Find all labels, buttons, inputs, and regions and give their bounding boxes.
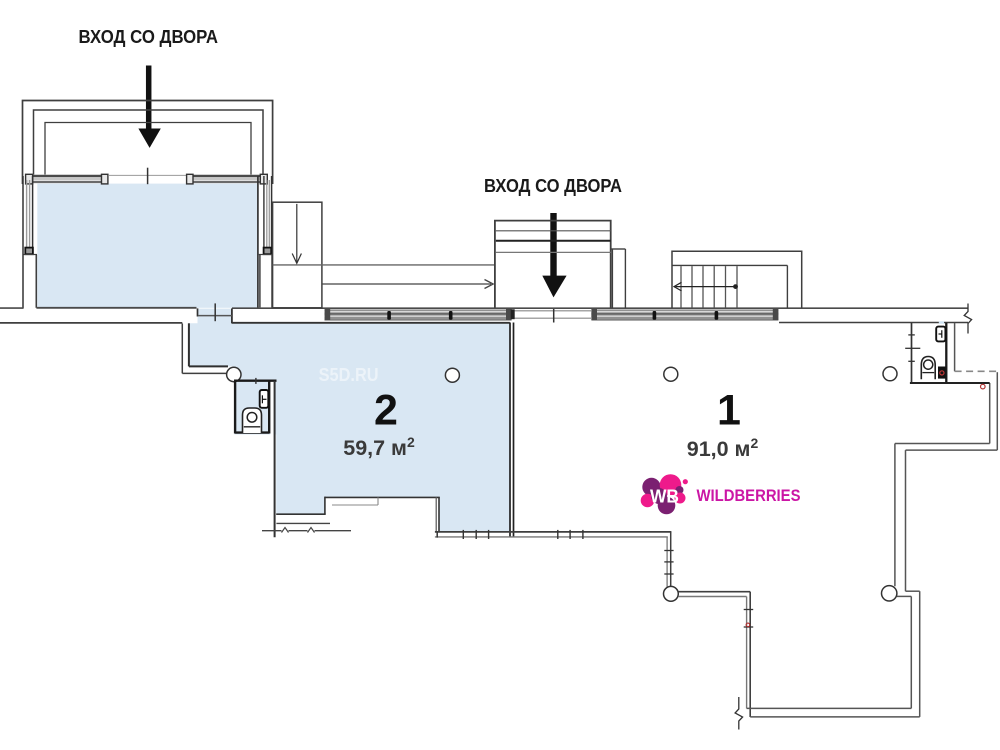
svg-text:S5D.RU: S5D.RU [319,365,379,385]
svg-text:WILDBERRIES: WILDBERRIES [697,487,801,505]
svg-text:59,7 м2: 59,7 м2 [343,434,415,460]
svg-text:ВХОД СО ДВОРА: ВХОД СО ДВОРА [79,26,219,47]
svg-text:ВХОД СО ДВОРА: ВХОД СО ДВОРА [484,175,622,196]
svg-text:2: 2 [374,387,398,435]
svg-text:91,0 м2: 91,0 м2 [687,435,759,461]
svg-text:WB: WB [650,486,679,507]
svg-text:1: 1 [717,387,741,435]
